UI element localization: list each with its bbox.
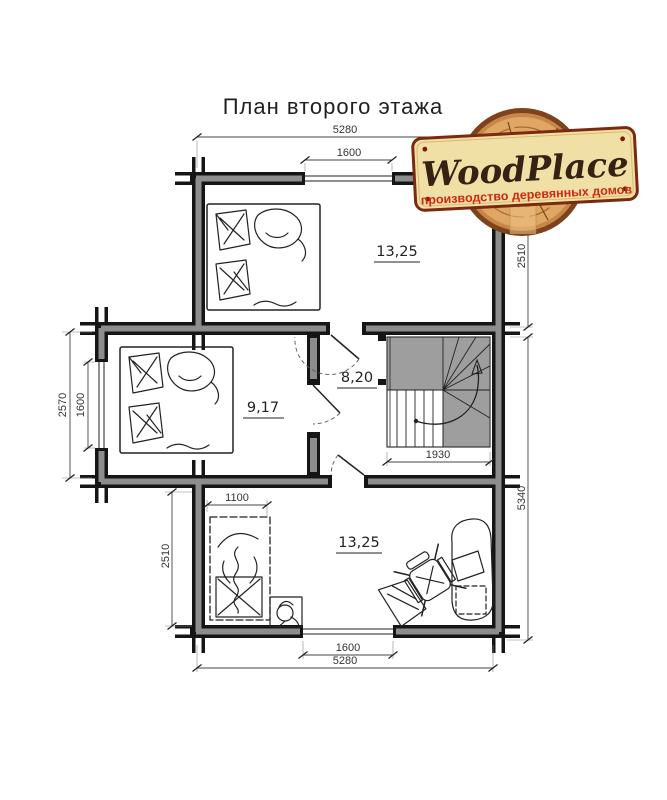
dim-right-upper: 2510 (516, 244, 528, 268)
dim-left-window: 1600 (75, 393, 87, 417)
double-bed-top-room (207, 204, 320, 310)
window-left-wing (95, 359, 108, 451)
logo-banner: WoodPlace производство деревянных домов (412, 127, 637, 211)
logo: WoodPlace производство деревянных домов (412, 108, 637, 236)
dim-bed-width: 1100 (225, 492, 249, 504)
dim-stairs-width: 1930 (426, 449, 450, 461)
page-title: План второго этажа (223, 94, 444, 119)
dim-bottom-room-height: 2510 (160, 544, 172, 568)
dim-bottom-total: 5280 (333, 655, 357, 667)
single-bed (210, 517, 270, 620)
nightstand-plant (270, 597, 302, 628)
window-top (302, 172, 395, 185)
dim-bottom-window: 1600 (336, 642, 360, 654)
room-label-bedroom-left: 9,17 (247, 400, 279, 416)
room-label-bedroom-bottom: 13,25 (338, 535, 380, 551)
room-label-bedroom-top: 13,25 (376, 244, 418, 260)
window-bottom (300, 625, 396, 638)
dim-left-outer: 2570 (57, 393, 69, 417)
dim-right-lower: 5340 (516, 486, 528, 510)
office-chair (394, 543, 466, 616)
stairs (378, 335, 490, 447)
double-bed-left-room (120, 347, 233, 453)
door-bedroom-left (307, 379, 340, 438)
desk (452, 519, 493, 620)
room-label-hall: 8,20 (341, 370, 373, 386)
floor-plan-page: План второго этажа (0, 0, 667, 800)
dim-top-window: 1600 (337, 147, 361, 159)
door-bottom-room (328, 455, 368, 488)
dim-top-total: 5280 (333, 124, 357, 136)
